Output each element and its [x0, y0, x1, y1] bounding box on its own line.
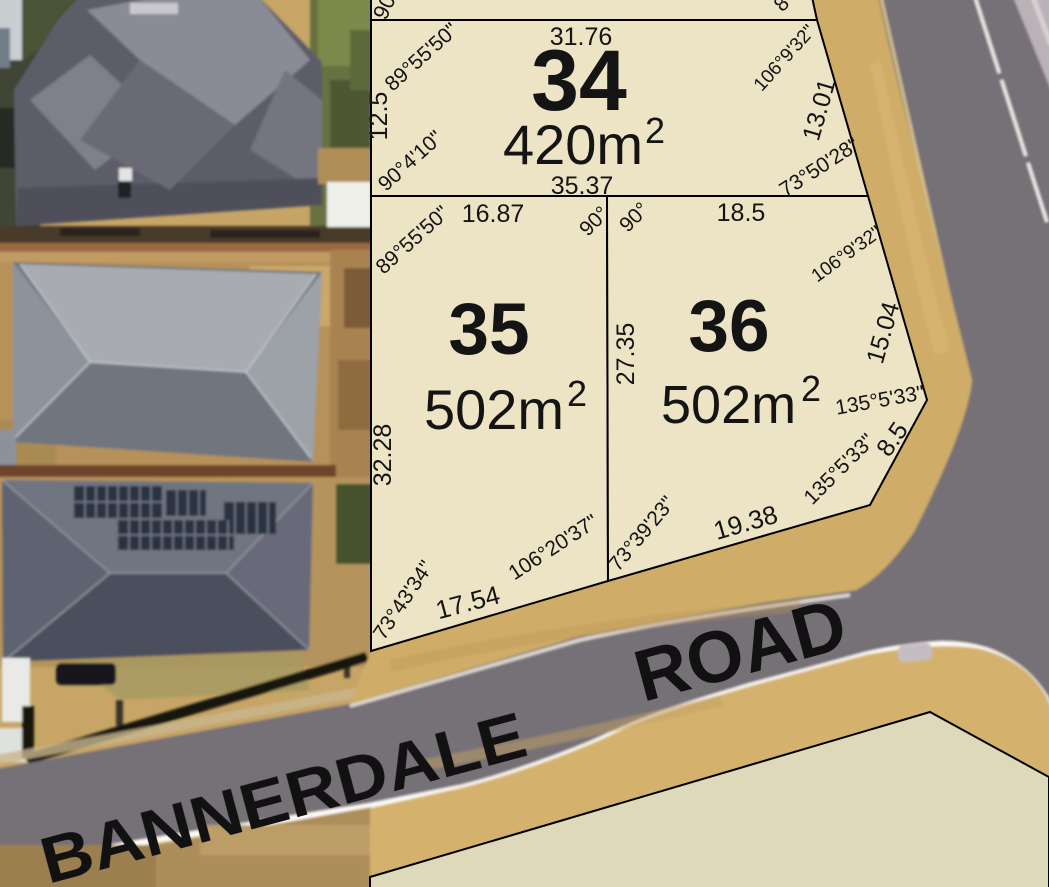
svg-text:2: 2	[645, 110, 665, 151]
svg-text:27.35: 27.35	[612, 323, 640, 386]
svg-text:35.37: 35.37	[551, 172, 614, 200]
svg-text:18.5: 18.5	[717, 199, 766, 227]
svg-text:2: 2	[567, 373, 587, 414]
svg-text:2: 2	[801, 368, 821, 409]
svg-text:35: 35	[448, 289, 529, 370]
svg-text:36: 36	[688, 286, 769, 367]
svg-text:502m: 502m	[661, 375, 796, 435]
svg-text:420m: 420m	[503, 113, 643, 176]
svg-text:502m: 502m	[424, 378, 564, 441]
svg-text:16.87: 16.87	[462, 200, 525, 228]
svg-text:12.5: 12.5	[365, 92, 393, 141]
svg-text:32.28: 32.28	[369, 424, 397, 487]
